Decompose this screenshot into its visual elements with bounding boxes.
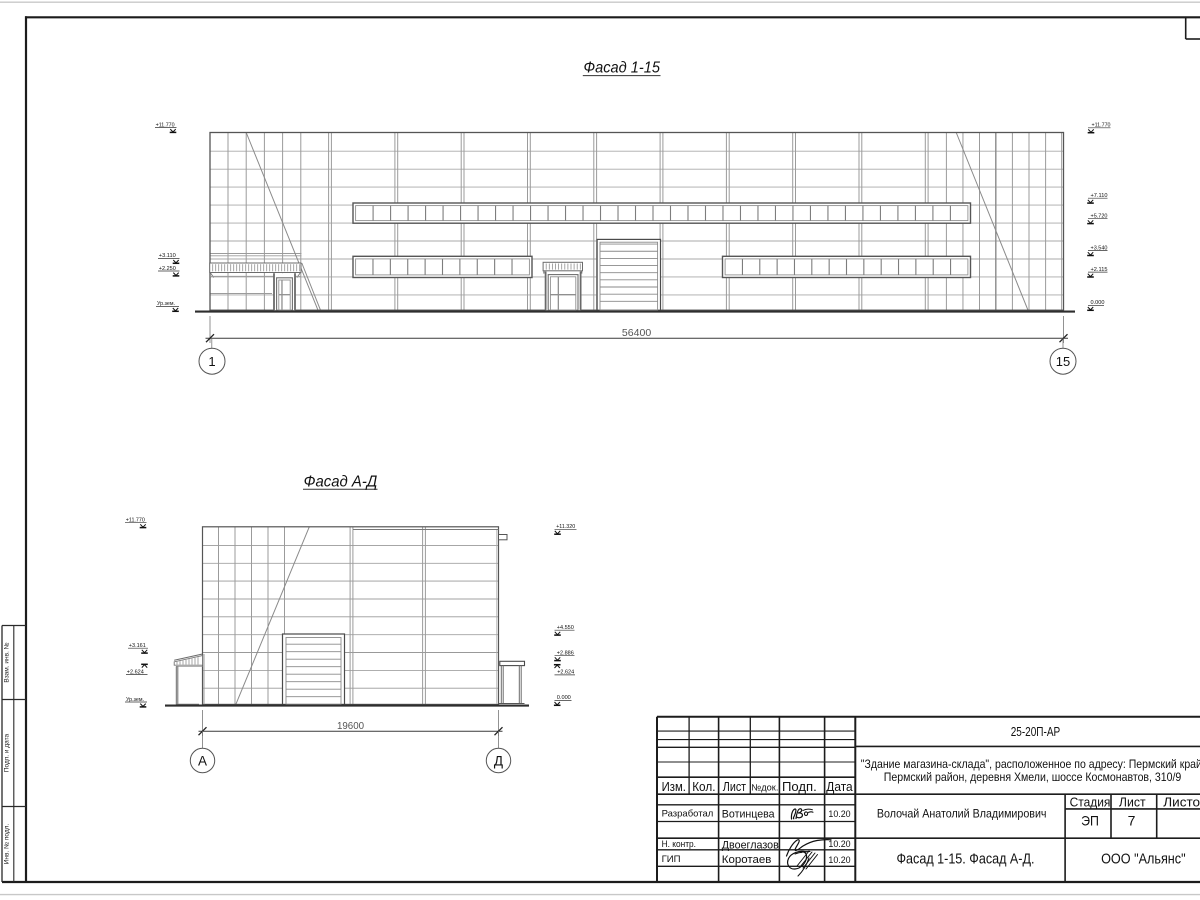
svg-text:А: А <box>198 753 207 768</box>
svg-text:Изм.: Изм. <box>662 779 686 794</box>
svg-text:1: 1 <box>208 354 215 369</box>
svg-text:Кол.: Кол. <box>692 779 715 794</box>
svg-text:Вотинцева: Вотинцева <box>722 809 776 821</box>
svg-text:Фасад 1-15: Фасад 1-15 <box>584 59 661 76</box>
svg-text:Стадия: Стадия <box>1070 795 1111 810</box>
svg-text:Дата: Дата <box>826 779 853 794</box>
svg-text:19600: 19600 <box>337 721 365 732</box>
svg-text:Н. контр.: Н. контр. <box>662 839 696 850</box>
svg-text:Фасад 1-15. Фасад А-Д.: Фасад 1-15. Фасад А-Д. <box>897 850 1035 867</box>
svg-text:Лист: Лист <box>723 779 746 794</box>
svg-text:Волочай Анатолий Владимирович: Волочай Анатолий Владимирович <box>877 807 1047 821</box>
svg-text:7: 7 <box>1128 813 1136 829</box>
svg-text:Разработал: Разработал <box>662 809 714 820</box>
svg-text:Подп. и дата: Подп. и дата <box>4 733 11 772</box>
svg-text:ЭП: ЭП <box>1081 813 1099 829</box>
svg-text:Листов: Листов <box>1163 795 1200 810</box>
svg-text:15: 15 <box>1056 354 1070 369</box>
svg-text:10.20: 10.20 <box>828 839 850 850</box>
svg-text:ООО "Альянс": ООО "Альянс" <box>1101 850 1186 867</box>
svg-text:56400: 56400 <box>622 328 652 339</box>
svg-text:Д: Д <box>494 753 503 768</box>
svg-text:10.20: 10.20 <box>828 809 850 820</box>
svg-text:Подп.: Подп. <box>782 779 817 794</box>
svg-text:25-20П-АР: 25-20П-АР <box>1011 724 1060 739</box>
svg-text:Взам. инв. №: Взам. инв. № <box>4 642 11 682</box>
svg-text:Коротаев: Коротаев <box>722 854 772 866</box>
svg-text:Лист: Лист <box>1119 795 1146 810</box>
svg-text:Пермский район, деревня Хмели,: Пермский район, деревня Хмели, шоссе Кос… <box>884 771 1182 784</box>
svg-text:ГИП: ГИП <box>662 854 681 865</box>
svg-text:10.20: 10.20 <box>828 855 850 866</box>
svg-text:"Здание магазина-склада", расп: "Здание магазина-склада", расположенное … <box>861 758 1200 771</box>
svg-text:Фасад А-Д: Фасад А-Д <box>304 473 378 490</box>
svg-text:Двоеглазов: Двоеглазов <box>722 839 779 851</box>
svg-text:Инв. № подл.: Инв. № подл. <box>4 824 11 865</box>
svg-text:№док.: №док. <box>751 782 778 792</box>
